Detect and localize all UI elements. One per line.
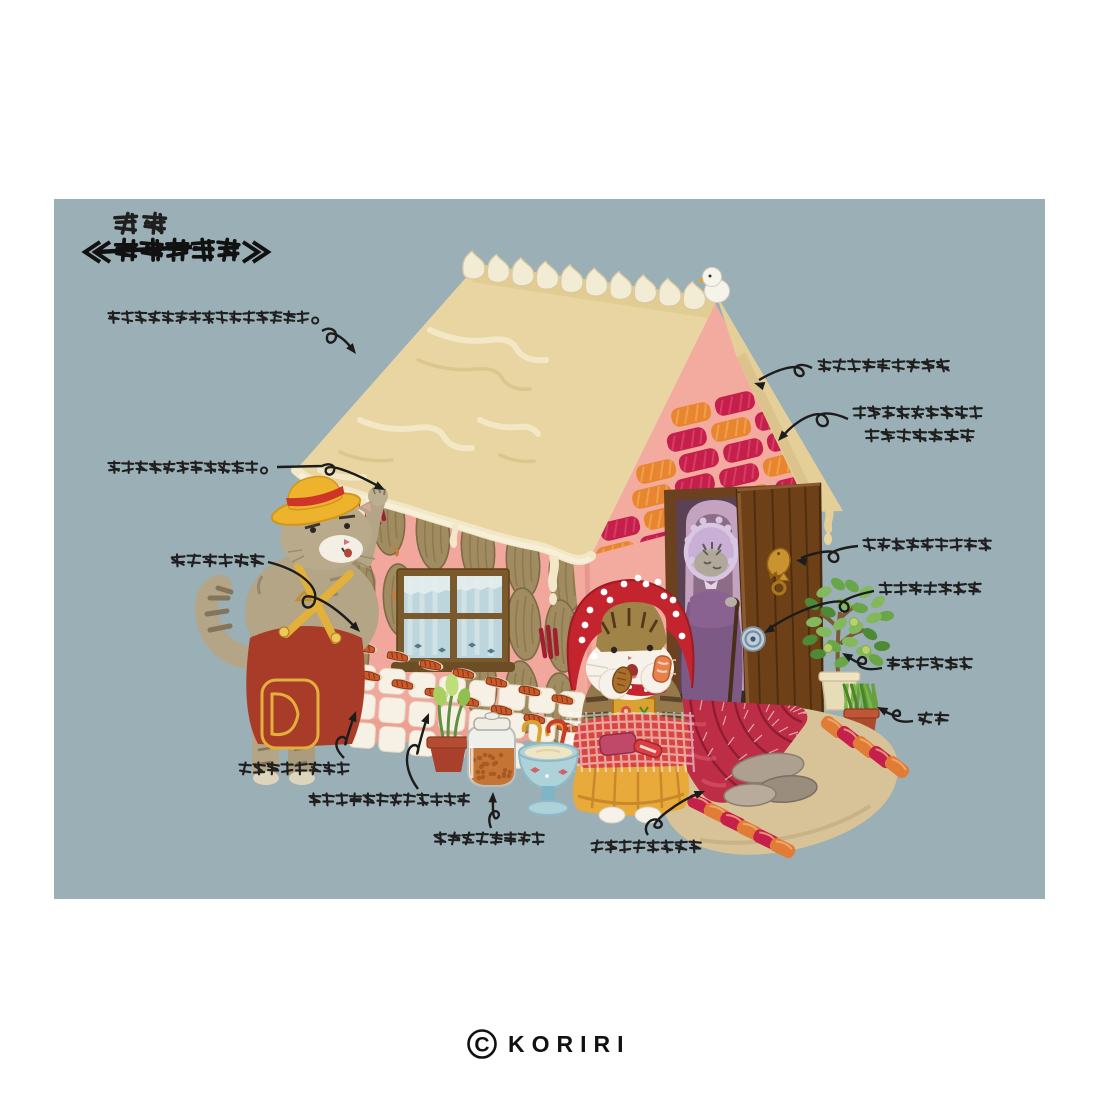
svg-text:KORIRI: KORIRI bbox=[508, 1031, 631, 1057]
svg-text:C: C bbox=[474, 1034, 489, 1057]
